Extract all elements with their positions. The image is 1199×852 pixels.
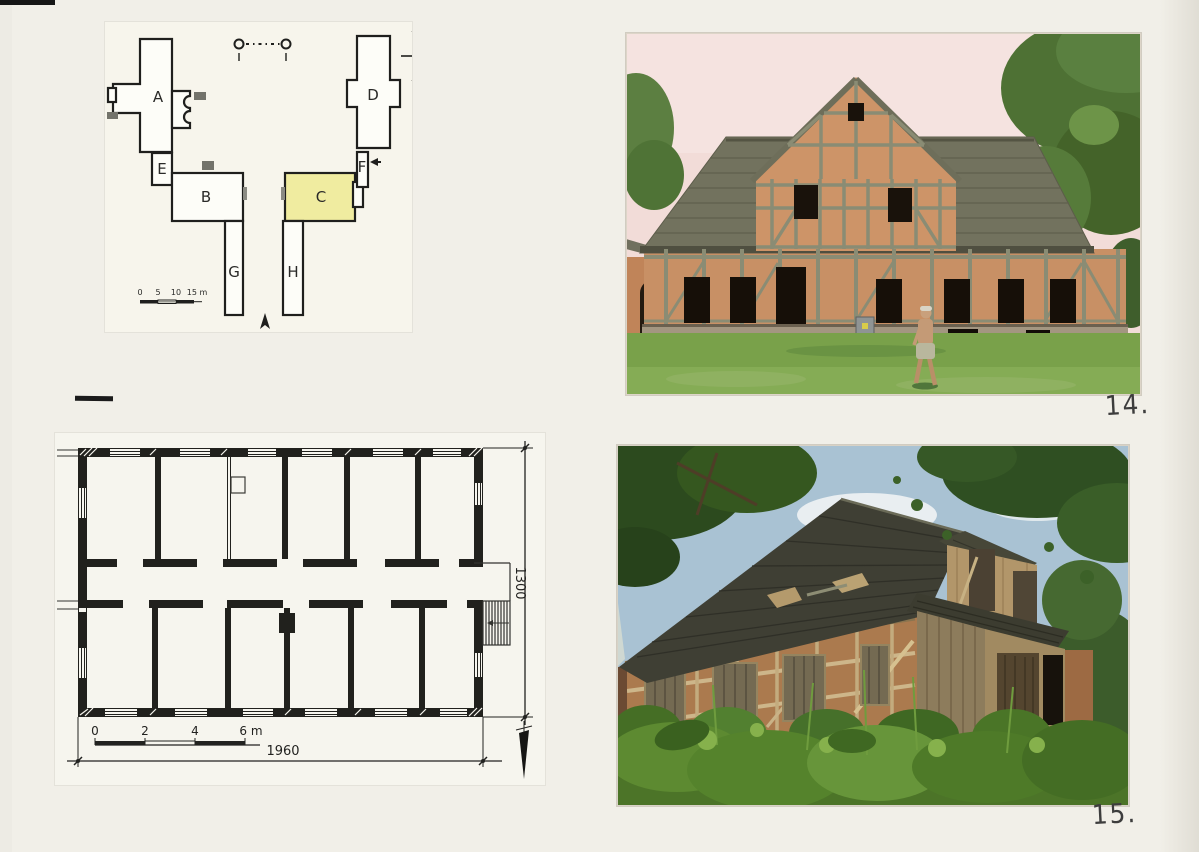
page-right-shade (1160, 0, 1199, 852)
album-page: 0 5 10 15 m A B C D E F G H (0, 0, 1199, 852)
building-a-porch (108, 88, 116, 102)
cap (920, 306, 932, 311)
north-needle-icon (516, 721, 532, 779)
label-building-d: D (367, 86, 379, 104)
label-building-c: C (316, 188, 326, 206)
gable-window-right (888, 188, 912, 222)
site-plan-figure: 0 5 10 15 m A B C D E F G H (105, 22, 412, 332)
siteplan-scale-10: 10 (171, 288, 181, 297)
entrance-arrow-icon (370, 158, 381, 166)
appliance-box (231, 477, 245, 493)
gable-window-left (794, 185, 818, 219)
label-building-e: E (157, 160, 166, 178)
label-building-h: H (287, 263, 298, 281)
shorts (916, 343, 935, 359)
fp-scale-0: 0 (91, 724, 99, 738)
fp-scale-2: 2 (141, 724, 149, 738)
left-extension-lines (57, 450, 78, 609)
gable-hatch-1 (969, 549, 995, 611)
north-arrow-icon (260, 313, 270, 329)
building-a-outline (113, 39, 172, 152)
arc-feature (401, 31, 412, 81)
photo-14-scene (626, 33, 1141, 395)
dimension-width-label: 1960 (266, 744, 299, 759)
siteplan-scale-15m: 15 m (187, 288, 208, 297)
gate-symbols (235, 40, 291, 62)
interior-partitions (152, 457, 425, 708)
label-building-b: B (201, 188, 211, 206)
photo-14-label: 14. (1104, 389, 1151, 422)
label-building-g: G (228, 263, 240, 281)
photo-15-scene (617, 445, 1129, 806)
label-building-f: F (358, 158, 367, 176)
floorplan-scale-bar: 0 2 4 6 m (91, 724, 262, 745)
corridor-walls (78, 559, 483, 608)
lawn (626, 333, 1141, 395)
gable-attic-window (848, 103, 864, 121)
scan-artifact-top (0, 0, 55, 5)
shed-opening (1043, 655, 1063, 725)
photo-15 (617, 445, 1129, 806)
siteplan-scale-5: 5 (155, 288, 160, 297)
building-a-bays (172, 91, 190, 128)
plinth-line (642, 324, 1128, 327)
door-opening (776, 267, 806, 331)
right-wall-opening (474, 565, 483, 601)
meter-box-label (862, 323, 868, 329)
brick-pier (1065, 650, 1093, 725)
floor-plan-drawing: 1300 1960 (55, 433, 545, 785)
siteplan-scale-bar: 0 5 10 15 m (137, 288, 207, 304)
photo-14 (626, 33, 1141, 395)
dimension-height-label: 1300 (512, 566, 527, 599)
photo-15-label: 15. (1091, 798, 1138, 831)
floor-plan-figure: 1300 1960 (55, 433, 545, 785)
fp-scale-4: 4 (191, 724, 199, 738)
light-partition (228, 457, 231, 559)
page-left-shade (0, 0, 12, 852)
siteplan-scale-0: 0 (137, 288, 142, 297)
scan-artifact-dash (75, 396, 113, 402)
fp-scale-6m: 6 m (239, 724, 262, 738)
stove-block (279, 613, 295, 633)
site-plan-drawing: 0 5 10 15 m A B C D E F G H (105, 22, 412, 332)
label-building-a: A (153, 88, 164, 106)
